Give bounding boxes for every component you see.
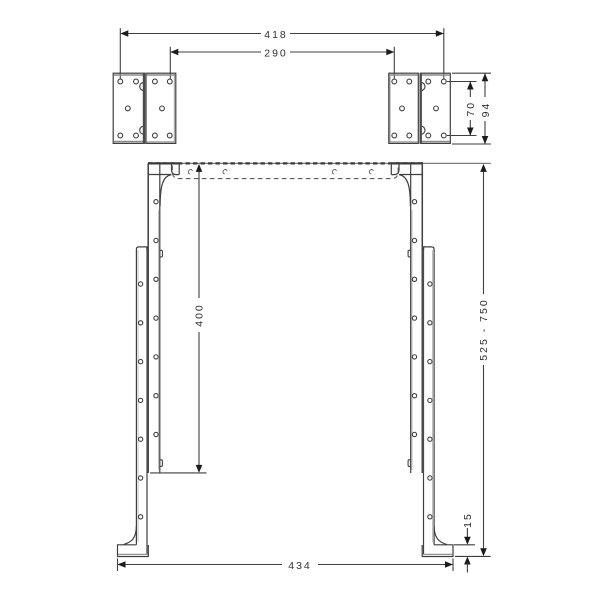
svg-text:418: 418: [264, 29, 288, 41]
svg-text:434: 434: [288, 560, 312, 572]
svg-text:290: 290: [264, 48, 288, 60]
svg-text:525 - 750: 525 - 750: [478, 298, 490, 360]
svg-text:70: 70: [465, 101, 477, 117]
svg-text:94: 94: [480, 102, 492, 118]
svg-text:400: 400: [194, 303, 206, 327]
svg-text:15: 15: [462, 512, 474, 528]
